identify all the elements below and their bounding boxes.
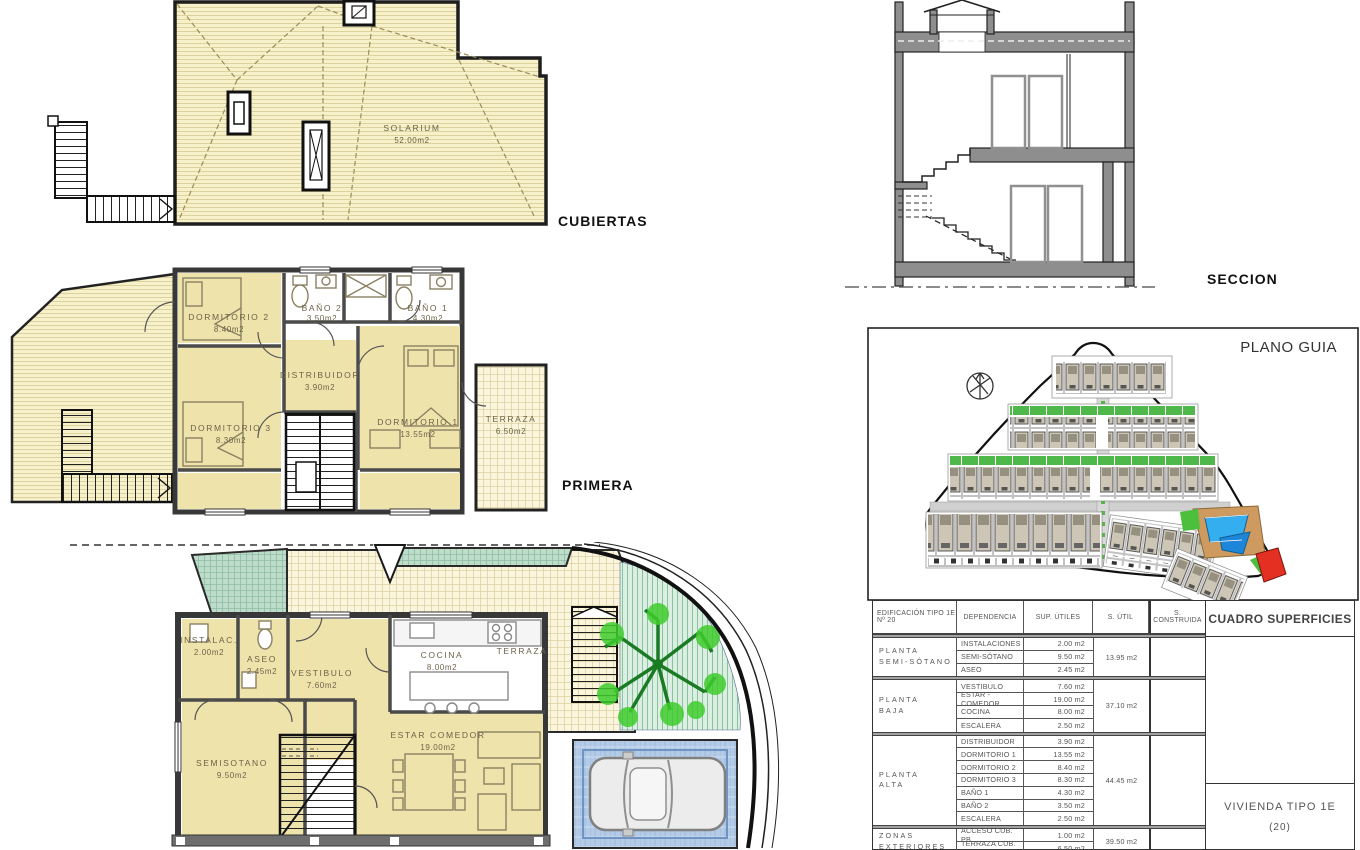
header-sup-utiles: SUP. ÚTILES <box>1024 601 1093 633</box>
dependencia-cell: COCINA <box>957 706 1024 718</box>
sup-utiles-cell: 6.50 m2 <box>1024 842 1093 850</box>
sup-utiles-cell: 2.50 m2 <box>1024 812 1093 825</box>
table-row: ESTAR - COMEDOR19.00 m2 <box>957 693 1093 706</box>
floor-name-cell: PLANTASEMI-SÓTANO <box>873 638 957 676</box>
room-label: SOLARIUM <box>383 123 440 133</box>
dependencia-cell: BAÑO 1 <box>957 787 1024 799</box>
surface-table-groups: PLANTASEMI-SÓTANOINSTALACIONES2.00 m2SEM… <box>873 634 1205 850</box>
room-area: 19.00m2 <box>420 743 455 752</box>
dependencia-rows: DISTRIBUIDOR3.90 m2DORMITORIO 113.55 m2D… <box>957 736 1093 826</box>
sup-utiles-cell: 8.40 m2 <box>1024 761 1093 773</box>
table-row: DORMITORIO 38.30 m2 <box>957 774 1093 787</box>
floor-name-cell: ZONASEXTERIORES <box>873 829 957 850</box>
room-label: ESTAR COMEDOR <box>390 730 485 740</box>
room-label: BAÑO 2 <box>302 303 343 313</box>
panel-label-plano-guia: PLANO GUIA <box>1240 339 1337 356</box>
dependencia-rows: ACCESO CUB. PB1.00 m2TERRAZA CUB. PA6.50… <box>957 829 1093 850</box>
upper-stair <box>902 148 970 182</box>
dependencia-cell: DORMITORIO 2 <box>957 761 1024 773</box>
surfaces-table-right: CUADRO SUPERFICIES VIVIENDA TIPO 1E (20) <box>1205 600 1355 850</box>
dependencia-rows: INSTALACIONES2.00 m2SEMI-SÓTANO9.50 m2AS… <box>957 638 1093 676</box>
sup-utiles-cell: 2.45 m2 <box>1024 664 1093 677</box>
sup-utiles-cell: 3.50 m2 <box>1024 800 1093 812</box>
drawing-sheet: SOLARIUM 52.00m2 CUBIERTAS <box>0 0 1360 850</box>
header-s-util: S. ÚTIL <box>1093 601 1149 633</box>
room-label: DORMITORIO 3 <box>190 423 271 433</box>
room-area: 8.30m2 <box>216 436 246 445</box>
room-label: DORMITORIO 2 <box>188 312 269 322</box>
sup-utiles-cell: 8.30 m2 <box>1024 774 1093 786</box>
room-area: 2.00m2 <box>194 648 224 657</box>
lantern-shaft <box>939 32 985 52</box>
table-row: DISTRIBUIDOR3.90 m2 <box>957 736 1093 749</box>
s-util-total-cell: 39.50 m2 <box>1093 829 1149 850</box>
panel-label-cubiertas: CUBIERTAS <box>558 213 648 229</box>
room-area: 7.60m2 <box>307 681 337 690</box>
sup-utiles-cell: 4.30 m2 <box>1024 787 1093 799</box>
table-row: DORMITORIO 113.55 m2 <box>957 748 1093 761</box>
room-label: SEMISOTANO <box>196 758 268 768</box>
header-edificacion: EDIFICACIÓN TIPO 1ENº 20 <box>873 601 957 633</box>
central-stair <box>286 414 354 510</box>
table-row: TERRAZA CUB. PA6.50 m2 <box>957 842 1093 850</box>
room-area: 6.50m2 <box>496 427 526 436</box>
sup-utiles-cell: 2.50 m2 <box>1024 719 1093 732</box>
room-label: DORMITORIO 1 <box>377 417 458 427</box>
dependencia-cell: ESTAR - COMEDOR <box>957 693 1024 705</box>
sup-utiles-cell: 2.00 m2 <box>1024 638 1093 650</box>
sup-utiles-cell: 13.55 m2 <box>1024 748 1093 760</box>
room-label: TERRAZA <box>497 646 548 656</box>
sup-utiles-cell: 3.90 m2 <box>1024 736 1093 748</box>
vivienda-line2: (20) <box>1269 822 1291 833</box>
room-area: 13.55m2 <box>400 430 435 439</box>
room-area: 3.90m2 <box>305 383 335 392</box>
table-group-row: PLANTASEMI-SÓTANOINSTALACIONES2.00 m2SEM… <box>873 638 1205 676</box>
panel-label-primera: PRIMERA <box>562 477 634 493</box>
road-horizontal <box>930 502 1230 511</box>
table-row: SEMI-SÓTANO9.50 m2 <box>957 651 1093 664</box>
table-row: ESCALERA2.50 m2 <box>957 812 1093 825</box>
vivienda-line1: VIVIENDA TIPO 1E <box>1224 801 1336 813</box>
section-doors <box>992 76 1082 262</box>
section-drawing: SECCION <box>840 0 1360 300</box>
planter-strip-top <box>377 548 572 566</box>
dependencia-cell: DISTRIBUIDOR <box>957 736 1024 748</box>
planter-strip-left <box>192 549 287 615</box>
dependencia-cell: TERRAZA CUB. PA <box>957 842 1024 850</box>
dependencia-cell: ESCALERA <box>957 812 1024 825</box>
sup-utiles-cell: 9.50 m2 <box>1024 651 1093 663</box>
s-util-total-cell: 44.45 m2 <box>1093 736 1149 826</box>
table-row: DORMITORIO 28.40 m2 <box>957 761 1093 774</box>
sup-utiles-cell: 7.60 m2 <box>1024 680 1093 692</box>
sup-utiles-cell: 8.00 m2 <box>1024 706 1093 718</box>
stair-slope-dash <box>926 216 1016 262</box>
room-label: COCINA <box>421 650 464 660</box>
table-row: ASEO2.45 m2 <box>957 664 1093 677</box>
dependencia-cell: DORMITORIO 3 <box>957 774 1024 786</box>
table-row: BAÑO 23.50 m2 <box>957 800 1093 813</box>
dependencia-cell: DORMITORIO 1 <box>957 748 1024 760</box>
room-label: DISTRIBUIDOR <box>280 370 360 380</box>
floor-name-cell: PLANTABAJA <box>873 680 957 731</box>
sup-utiles-cell: 1.00 m2 <box>1024 829 1093 841</box>
room-label: VESTIBULO <box>291 668 353 678</box>
s-util-total-cell: 37.10 m2 <box>1093 680 1149 731</box>
table-row: ESCALERA2.50 m2 <box>957 719 1093 732</box>
table-row: BAÑO 14.30 m2 <box>957 787 1093 800</box>
room-area: 4.30m2 <box>413 314 443 323</box>
roof-access-stair <box>48 116 175 222</box>
car <box>590 752 725 836</box>
header-dependencia: DEPENDENCIA <box>957 601 1024 633</box>
lower-stair <box>932 218 1016 260</box>
s-construida-cell <box>1149 638 1205 676</box>
terraza-balcony <box>476 365 546 510</box>
dependencia-cell: INSTALACIONES <box>957 638 1024 650</box>
room-area: 8.00m2 <box>427 663 457 672</box>
pool-zone <box>1193 506 1265 558</box>
first-floor-plan: DORMITORIO 2 8.40m2 BAÑO 2 3.50m2 BAÑO 1… <box>0 262 660 524</box>
table-header-row: EDIFICACIÓN TIPO 1ENº 20 DEPENDENCIA SUP… <box>873 601 1205 634</box>
surfaces-table-left: EDIFICACIÓN TIPO 1ENº 20 DEPENDENCIA SUP… <box>872 600 1205 850</box>
vivienda-tipo-cell: VIVIENDA TIPO 1E (20) <box>1206 784 1354 849</box>
dependencia-cell: SEMI-SÓTANO <box>957 651 1024 663</box>
room-label: ASEO <box>247 654 277 664</box>
table-group-row: PLANTAALTADISTRIBUIDOR3.90 m2DORMITORIO … <box>873 736 1205 826</box>
table-row: COCINA8.00 m2 <box>957 706 1093 719</box>
dependencia-cell: ASEO <box>957 664 1024 677</box>
central-stair <box>280 735 355 838</box>
room-label: TERRAZA <box>486 414 537 424</box>
s-util-total-cell: 13.95 m2 <box>1093 638 1149 676</box>
room-label: INSTALAC. <box>180 635 238 645</box>
ground-floor-plan: INSTALAC. 2.00m2 ASEO 2.45m2 VESTIBULO 7… <box>60 542 860 850</box>
sup-utiles-cell: 19.00 m2 <box>1024 693 1093 705</box>
surfaces-table: EDIFICACIÓN TIPO 1ENº 20 DEPENDENCIA SUP… <box>872 600 1355 850</box>
bottom-wall <box>172 835 550 846</box>
section-structure <box>895 2 1134 286</box>
cuadro-superficies-title: CUADRO SUPERFICIES <box>1206 601 1354 637</box>
table-group-row: PLANTABAJAVESTIBULO7.60 m2ESTAR - COMEDO… <box>873 680 1205 731</box>
dependencia-cell: ESCALERA <box>957 719 1024 732</box>
room-area: 3.50m2 <box>307 314 337 323</box>
site-plan: PLANO GUIA <box>860 326 1360 602</box>
room-label: BAÑO 1 <box>408 303 449 313</box>
s-construida-cell <box>1149 736 1205 826</box>
floor-name-cell: PLANTAALTA <box>873 736 957 826</box>
dependencia-cell: BAÑO 2 <box>957 800 1024 812</box>
roof-plan: SOLARIUM 52.00m2 CUBIERTAS <box>0 0 660 240</box>
s-construida-cell <box>1149 829 1205 850</box>
room-area: 2.45m2 <box>247 667 277 676</box>
terrace-left <box>12 274 175 502</box>
s-construida-cell <box>1149 680 1205 731</box>
header-s-construida: S. CONSTRUIDA <box>1149 601 1204 633</box>
table-row: INSTALACIONES2.00 m2 <box>957 638 1093 651</box>
room-area: 9.50m2 <box>217 771 247 780</box>
interior-wall <box>1067 54 1070 148</box>
cuadro-empty-cell <box>1206 637 1354 784</box>
green-patch <box>1180 509 1200 531</box>
table-group-row: ZONASEXTERIORESACCESO CUB. PB1.00 m2TERR… <box>873 829 1205 850</box>
dependencia-rows: VESTIBULO7.60 m2ESTAR - COMEDOR19.00 m2C… <box>957 680 1093 731</box>
room-area: 8.40m2 <box>214 325 244 334</box>
room-area: 52.00m2 <box>394 136 429 145</box>
parking-area <box>573 740 737 848</box>
panel-label-seccion: SECCION <box>1207 271 1278 287</box>
